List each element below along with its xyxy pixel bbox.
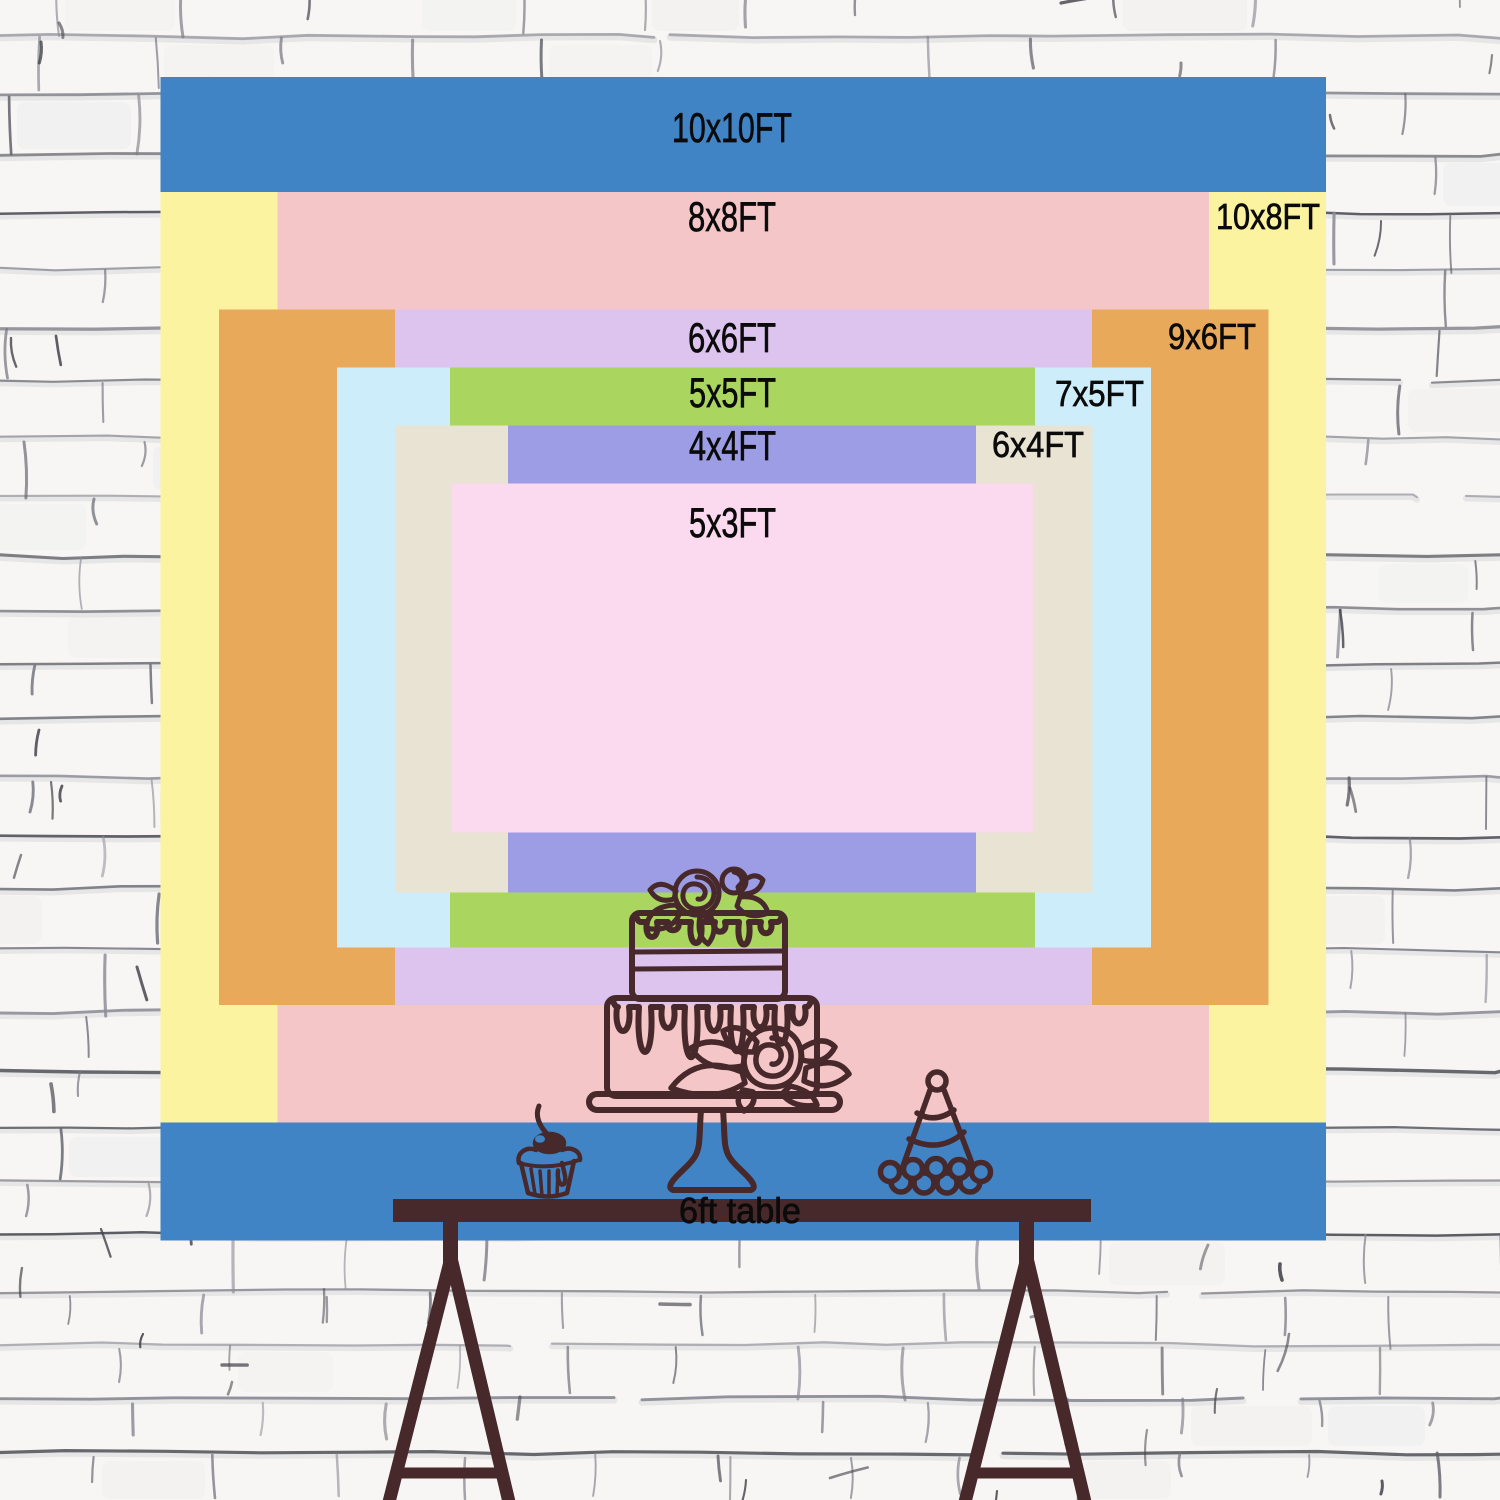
svg-text:5x5FT: 5x5FT (689, 369, 776, 416)
svg-text:7x5FT: 7x5FT (1055, 373, 1144, 414)
svg-text:5x3FT: 5x3FT (689, 499, 776, 546)
svg-text:10x10FT: 10x10FT (672, 104, 792, 151)
svg-text:10x8FT: 10x8FT (1216, 196, 1320, 237)
svg-text:8x8FT: 8x8FT (688, 193, 776, 240)
svg-text:6x6FT: 6x6FT (688, 314, 776, 361)
svg-text:4x4FT: 4x4FT (689, 422, 776, 469)
svg-text:6x4FT: 6x4FT (992, 424, 1084, 465)
svg-text:6ft table: 6ft table (679, 1190, 801, 1231)
svg-text:9x6FT: 9x6FT (1168, 316, 1256, 357)
